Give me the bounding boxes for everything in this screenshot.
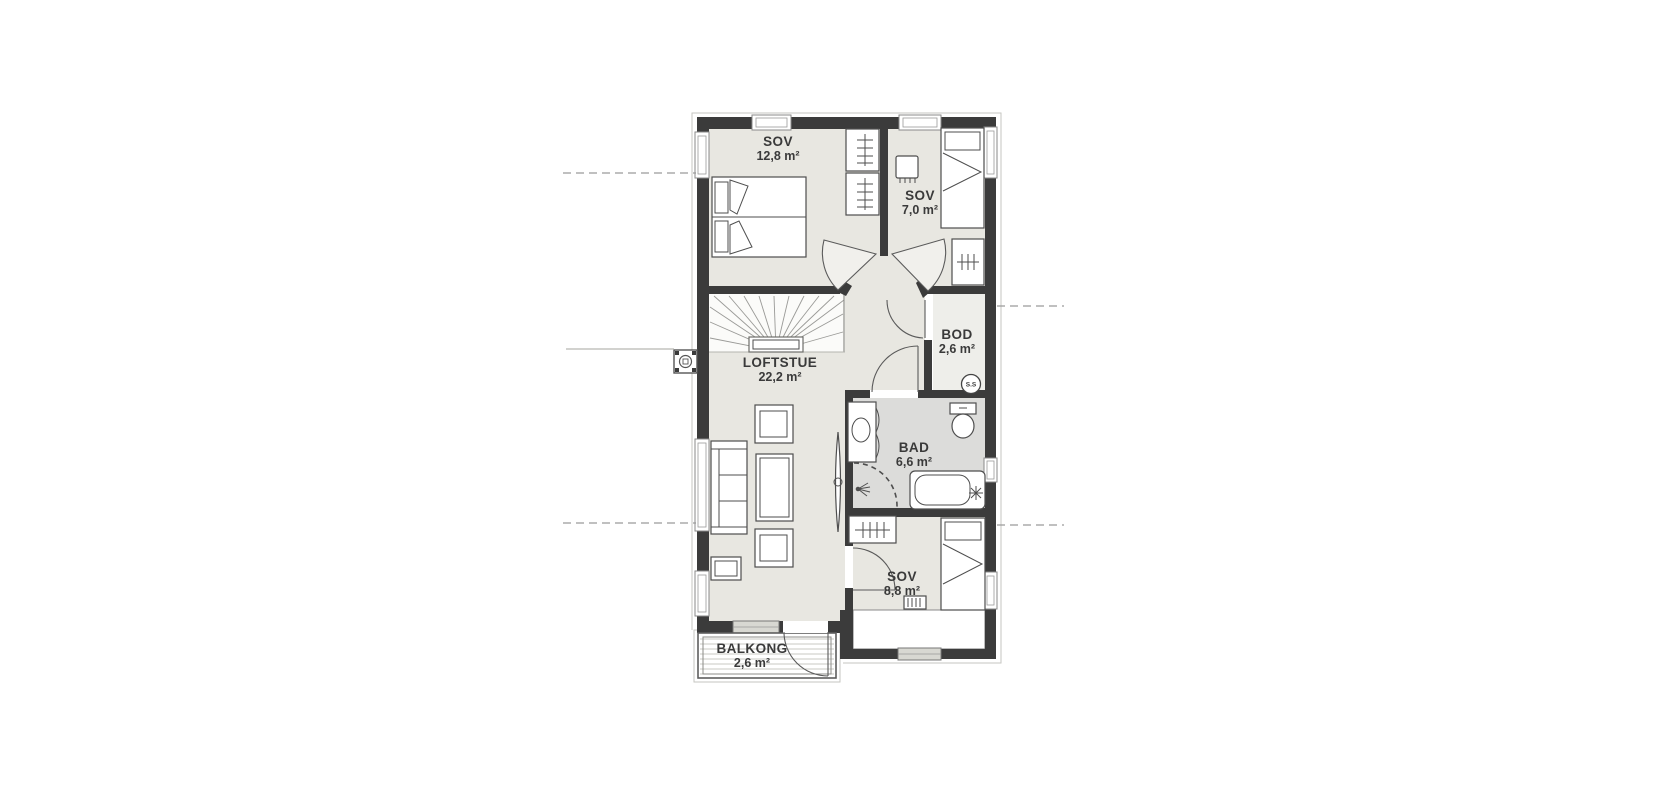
floor-plan-page: { "plan": { "rooms": [ {"name": "SOV", "… [0,0,1670,800]
window-left-1 [695,132,709,178]
window-left-2 [695,439,709,531]
stair-landing [749,337,803,352]
wall-stair-south [703,286,840,294]
room-area-balkong: 2,6 m² [734,656,770,670]
window-right-1 [984,127,997,178]
chimney-icon [674,350,697,373]
room-label-bad: BAD [899,440,929,455]
window-left-3 [695,571,709,616]
floor-plan-drawing: S.S SOV 12,8 m² SOV 7,0 m² LOFTSTUE 22,2… [0,0,1670,800]
single-bed-icon [941,518,985,610]
vanity-sink-icon [848,402,879,462]
faucet-icon [969,486,983,500]
shaft-badge-label: S.S [966,382,977,389]
wall-mid-vertical-b [845,588,853,650]
room-area-sov-master: 12,8 m² [756,149,799,163]
window-top-2 [899,115,941,130]
lower-roof-strip [853,610,985,649]
sofa-icon [711,441,747,534]
window-top-1 [752,115,791,130]
window-bottom-right [898,648,941,660]
room-label-loftstue: LOFTSTUE [743,355,817,370]
room-area-bod: 2,6 m² [939,342,975,356]
wall-top [697,117,995,129]
room-area-sov2: 7,0 m² [902,203,938,217]
room-label-sov3: SOV [887,569,917,584]
wardrobe-icon [846,129,879,171]
coffee-table-icon [756,454,793,521]
wall-bod-west [924,340,932,390]
wardrobe-icon [846,173,879,215]
wall-bod-north [924,286,988,294]
armchair-icon [755,405,793,443]
bathtub-icon [910,471,985,509]
window-right-3 [984,572,997,609]
single-bed-icon [941,128,984,228]
wardrobe-icon [849,516,896,543]
room-area-loftstue: 22,2 m² [758,370,801,384]
room-label-sov2: SOV [905,188,935,203]
wall-sov-divider [880,128,888,256]
room-label-bod: BOD [941,327,972,342]
toilet-icon [950,403,976,438]
wardrobe-icon [952,239,984,285]
armchair-icon [755,529,793,567]
window-bottom-left [733,621,779,633]
wall-left [697,117,709,632]
room-area-bad: 6,6 m² [896,455,932,469]
balcony-door-opening [783,621,828,633]
hallway-floor [838,286,925,390]
window-right-2 [984,458,997,482]
side-table-icon [711,557,741,580]
double-bed-icon [712,177,806,257]
room-label-balkong: BALKONG [716,641,787,656]
stairs-icon [709,294,845,352]
shaft-badge: S.S [962,375,981,394]
room-label-sov-master: SOV [763,134,793,149]
room-area-sov3: 8,8 m² [884,584,920,598]
